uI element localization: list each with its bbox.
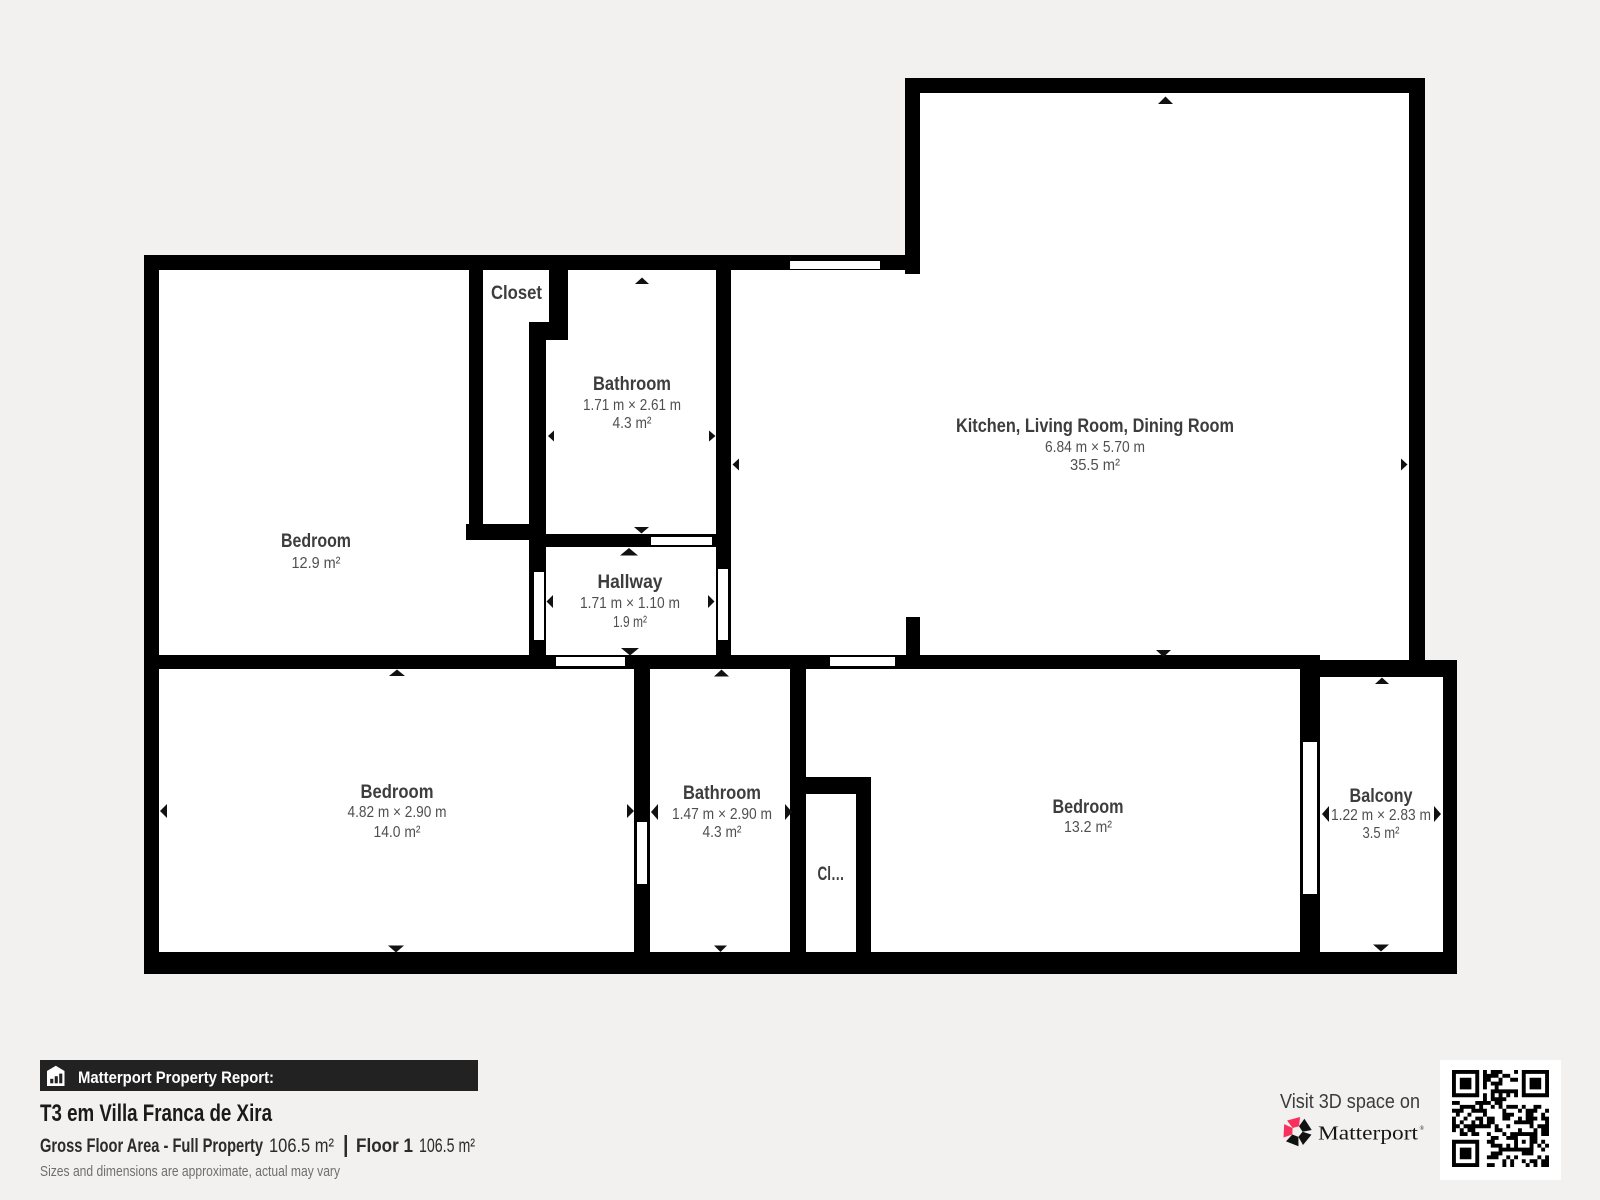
svg-text:Kitchen, Living Room, Dining R: Kitchen, Living Room, Dining Room [956, 416, 1234, 437]
svg-text:Hallway: Hallway [598, 572, 663, 593]
svg-text:Bedroom: Bedroom [361, 782, 434, 803]
svg-text:Visit 3D space on: Visit 3D space on [1280, 1091, 1420, 1113]
svg-text:6.84 m × 5.70 m: 6.84 m × 5.70 m [1045, 439, 1145, 456]
svg-text:1.47 m × 2.90 m: 1.47 m × 2.90 m [672, 806, 772, 823]
svg-text:4.3 m²: 4.3 m² [703, 824, 743, 841]
svg-text:Floor 1: Floor 1 [356, 1136, 413, 1157]
svg-text:Closet: Closet [491, 283, 543, 304]
svg-text:1.22 m × 2.83 m: 1.22 m × 2.83 m [1331, 807, 1431, 824]
svg-text:13.2 m²: 13.2 m² [1064, 819, 1113, 836]
svg-text:T3 em Villa Franca de Xira: T3 em Villa Franca de Xira [40, 1100, 273, 1127]
svg-text:Balcony: Balcony [1350, 786, 1413, 807]
svg-text:Bathroom: Bathroom [593, 374, 671, 395]
svg-text:®: ® [1420, 1125, 1425, 1132]
svg-text:1.9 m²: 1.9 m² [613, 614, 648, 631]
svg-text:Gross Floor Area - Full Proper: Gross Floor Area - Full Property [40, 1136, 263, 1157]
svg-text:Sizes and dimensions are appro: Sizes and dimensions are approximate, ac… [40, 1163, 340, 1180]
svg-text:4.82 m × 2.90 m: 4.82 m × 2.90 m [348, 804, 447, 821]
svg-text:Bathroom: Bathroom [683, 783, 761, 804]
svg-text:12.9 m²: 12.9 m² [292, 555, 342, 572]
svg-text:Cl…: Cl… [818, 864, 845, 885]
svg-text:Matterport: Matterport [1318, 1123, 1418, 1145]
svg-text:1.71 m × 2.61 m: 1.71 m × 2.61 m [583, 397, 681, 414]
svg-text:106.5 m²: 106.5 m² [419, 1136, 475, 1157]
svg-text:35.5 m²: 35.5 m² [1070, 457, 1121, 474]
svg-text:1.71 m × 1.10 m: 1.71 m × 1.10 m [580, 595, 680, 612]
svg-text:Bedroom: Bedroom [281, 531, 351, 552]
svg-text:3.5 m²: 3.5 m² [1363, 825, 1401, 842]
svg-text:Bedroom: Bedroom [1053, 797, 1124, 818]
svg-text:14.0 m²: 14.0 m² [374, 824, 422, 841]
svg-text:Matterport Property Report:: Matterport Property Report: [78, 1068, 274, 1087]
svg-text:106.5 m²: 106.5 m² [269, 1136, 334, 1157]
svg-text:4.3 m²: 4.3 m² [613, 415, 653, 432]
